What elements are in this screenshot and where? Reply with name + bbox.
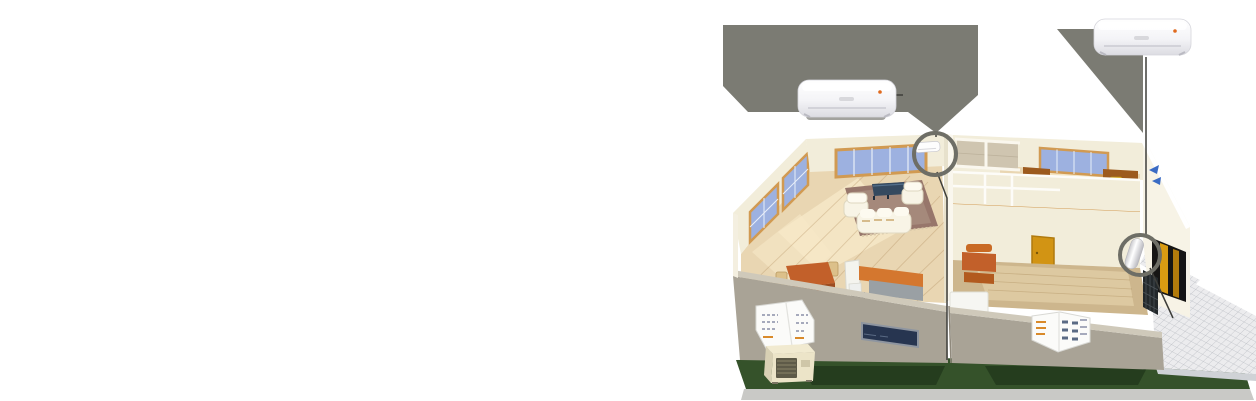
sofa-cushion <box>860 209 875 218</box>
sofa-cushion <box>894 207 909 216</box>
unit-top-highlight <box>1098 22 1187 30</box>
lawn-shadow-right <box>985 366 1148 385</box>
outdoor-unit-panel <box>801 360 810 367</box>
utility-rooms <box>955 139 1020 170</box>
armchair-right <box>902 182 923 204</box>
indicator-light <box>1173 29 1177 33</box>
brand-mark <box>1134 36 1149 40</box>
brand-mark <box>839 97 854 101</box>
armchair-back <box>904 182 922 191</box>
lawn-shadow-left <box>800 366 945 385</box>
concrete-base <box>741 389 1254 400</box>
bedroom-room <box>950 204 1148 315</box>
study-window <box>1040 148 1108 176</box>
home-air-conditioning-illustration <box>0 0 1256 401</box>
door-panel <box>1032 236 1054 268</box>
page <box>0 0 1256 401</box>
unit-top-highlight <box>802 83 892 91</box>
right-building <box>949 135 1190 370</box>
door-knob <box>1036 252 1038 254</box>
orange-armchair <box>962 244 996 284</box>
chair-headrest <box>966 244 992 252</box>
outdoor-unit <box>764 344 815 383</box>
front-wall-corner <box>733 213 738 278</box>
sofa-cushion <box>877 208 892 217</box>
entrance-door-strip-2 <box>1173 249 1179 298</box>
armchair-back <box>847 193 867 203</box>
chair-back <box>962 252 996 272</box>
bedroom-door <box>1032 236 1054 268</box>
sofa <box>857 207 911 233</box>
lounge-set <box>844 180 938 236</box>
middle-wall <box>944 134 953 303</box>
enlarged-indoor-unit-2 <box>1094 19 1191 55</box>
indicator-light <box>878 90 882 94</box>
middle-wall-face <box>948 134 953 301</box>
enlarged-indoor-unit-1 <box>798 80 896 120</box>
chair-seat <box>964 272 994 284</box>
